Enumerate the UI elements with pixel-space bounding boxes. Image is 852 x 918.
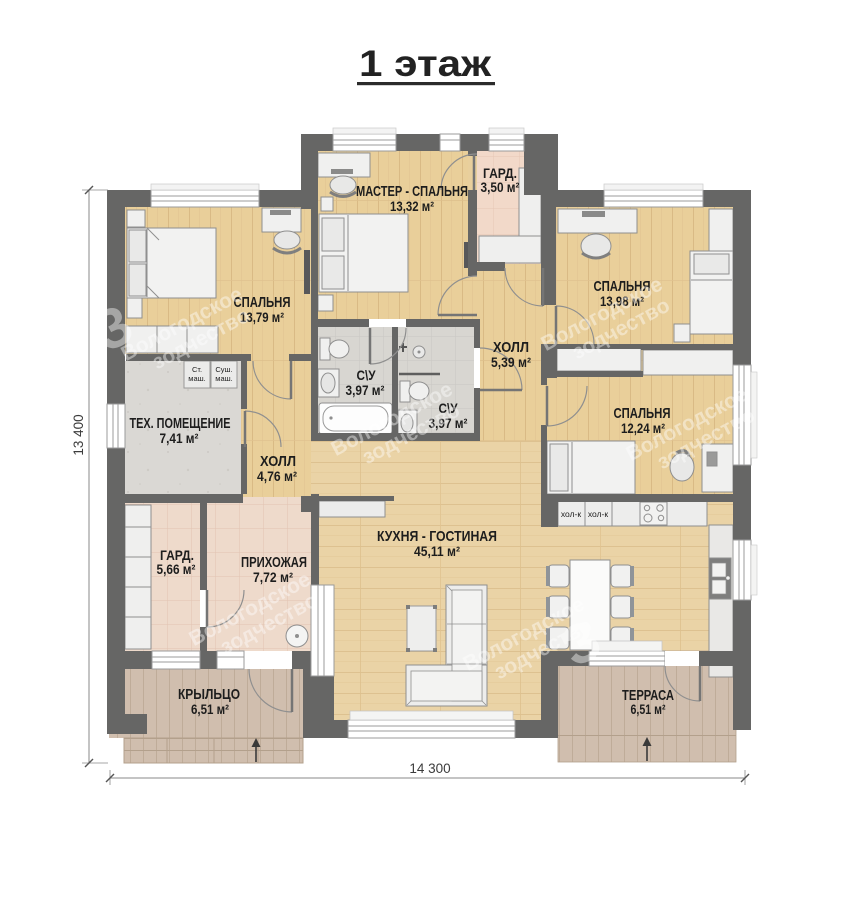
svg-text:1 этаж: 1 этаж [359, 43, 492, 84]
svg-text:5,66 м²: 5,66 м² [157, 562, 196, 577]
svg-text:Ст.: Ст. [192, 365, 202, 374]
svg-text:хол-к: хол-к [588, 509, 608, 519]
svg-text:14 300: 14 300 [409, 761, 450, 776]
svg-text:7,41 м²: 7,41 м² [160, 430, 199, 446]
svg-text:хол-к: хол-к [561, 509, 581, 519]
svg-text:3,50 м²: 3,50 м² [481, 180, 520, 195]
svg-text:6,51 м²: 6,51 м² [631, 701, 666, 717]
svg-text:45,11 м²: 45,11 м² [414, 543, 460, 559]
svg-text:ГАРД.: ГАРД. [483, 165, 517, 181]
svg-text:13,32 м²: 13,32 м² [390, 198, 434, 214]
svg-text:3,97 м²: 3,97 м² [346, 383, 385, 398]
svg-text:маш.: маш. [188, 374, 205, 383]
svg-text:13 400: 13 400 [71, 414, 86, 455]
svg-text:5,39 м²: 5,39 м² [491, 354, 531, 370]
svg-text:ГАРД.: ГАРД. [160, 547, 194, 563]
svg-text:Суш.: Суш. [215, 365, 232, 374]
svg-text:6,51 м²: 6,51 м² [191, 701, 229, 717]
svg-text:4,76 м²: 4,76 м² [257, 468, 297, 484]
svg-text:С\У: С\У [357, 367, 376, 383]
svg-text:маш.: маш. [215, 374, 232, 383]
